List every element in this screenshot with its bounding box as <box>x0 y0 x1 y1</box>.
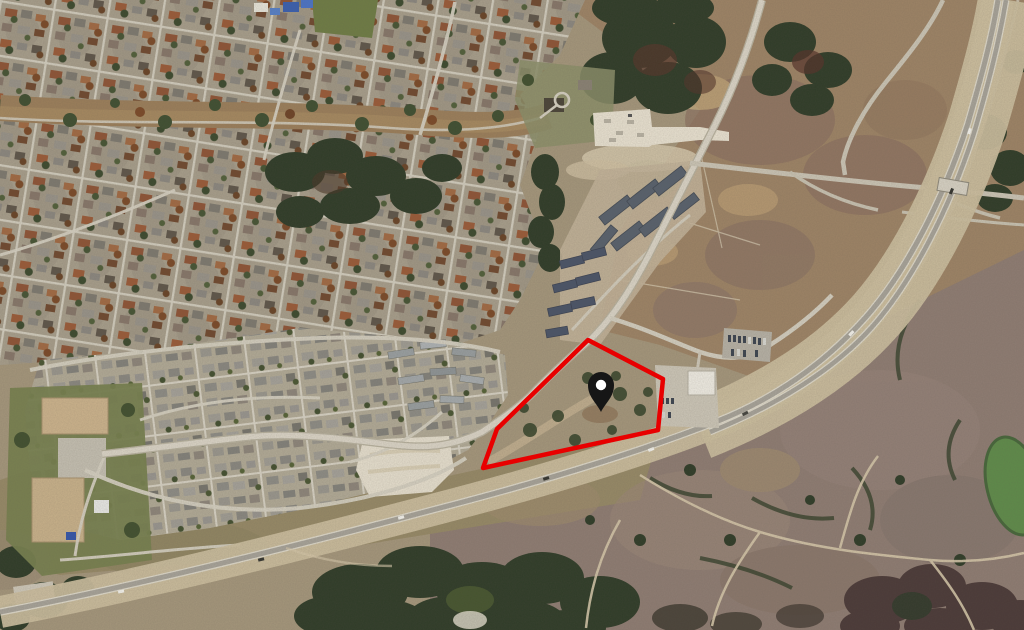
satellite-map-canvas[interactable] <box>0 0 1024 630</box>
grain-overlay <box>0 0 1024 630</box>
aerial-imagery <box>0 0 1024 630</box>
pin-center-dot <box>596 380 606 390</box>
